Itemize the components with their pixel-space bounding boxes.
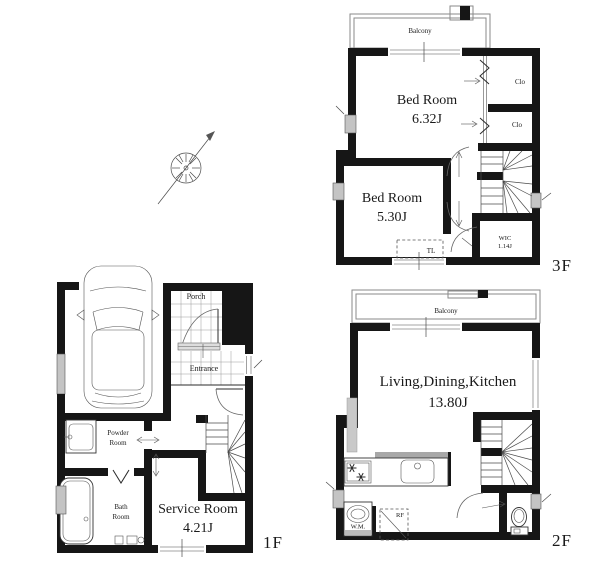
service-room-name: Service Room [158, 502, 238, 517]
floor-plan-3f: Balcony [333, 6, 572, 275]
floor-label-3f: 3F [552, 256, 572, 275]
closet-b-label: Clo [512, 121, 523, 129]
windows-3f [333, 42, 551, 270]
walls-3f [336, 48, 540, 265]
bedroom-b-name: Bed Room [362, 191, 422, 206]
bedroom-a-name: Bed Room [397, 93, 457, 108]
balcony-3f-label: Balcony [408, 27, 432, 35]
toilet-tl-3f: TL [397, 240, 443, 258]
kitchen-counter [344, 452, 448, 486]
balcony-2f-label: Balcony [434, 307, 458, 315]
bath-room: Bath Room [56, 454, 159, 544]
staircase-1f [206, 415, 245, 493]
bath-room-label-1: Bath [114, 503, 128, 511]
service-room-area: 4.21J [183, 521, 214, 536]
powder-sink [64, 420, 96, 453]
entrance-label: Entrance [190, 364, 219, 373]
wic-name: WIC [499, 235, 512, 242]
floor-plan-1f: Porch Entrance [56, 266, 283, 557]
tl-label: TL [427, 247, 436, 255]
closet-doors-3f [461, 56, 489, 143]
north-arrow-compass-icon [158, 131, 215, 204]
porch: Porch [171, 291, 222, 350]
bath-room-label-2: Room [112, 513, 130, 521]
washing-machine-label: W.M. [351, 524, 366, 531]
balcony-3f: Balcony [350, 6, 490, 48]
floor-plan-page: Balcony [0, 0, 600, 562]
car-icon [77, 266, 159, 408]
floor-plan-2f: Balcony [326, 290, 572, 550]
powder-room-label-2: Room [109, 439, 127, 447]
floor-label-2f: 2F [552, 531, 572, 550]
floor-plan-drawing: Balcony [0, 0, 600, 562]
balcony-2f: Balcony [352, 290, 540, 323]
floor-label-1f: 1F [263, 533, 283, 552]
bedroom-b-area: 5.30J [377, 210, 408, 225]
washing-machine: W.M. [344, 502, 372, 536]
hall-door-1f [216, 389, 243, 415]
toilet-2f [457, 493, 528, 535]
staircase-3f [481, 151, 532, 213]
ldk-area: 13.80J [428, 395, 468, 411]
closet-a-label: Clo [515, 78, 526, 86]
wic-area: 1.14J [498, 243, 512, 250]
powder-room-label-1: Powder [107, 429, 129, 437]
ldk-name: Living,Dining,Kitchen [380, 374, 517, 390]
refrigerator-label: RF [396, 512, 404, 519]
bedroom-a-area: 6.32J [412, 112, 443, 127]
porch-label: Porch [187, 292, 206, 301]
